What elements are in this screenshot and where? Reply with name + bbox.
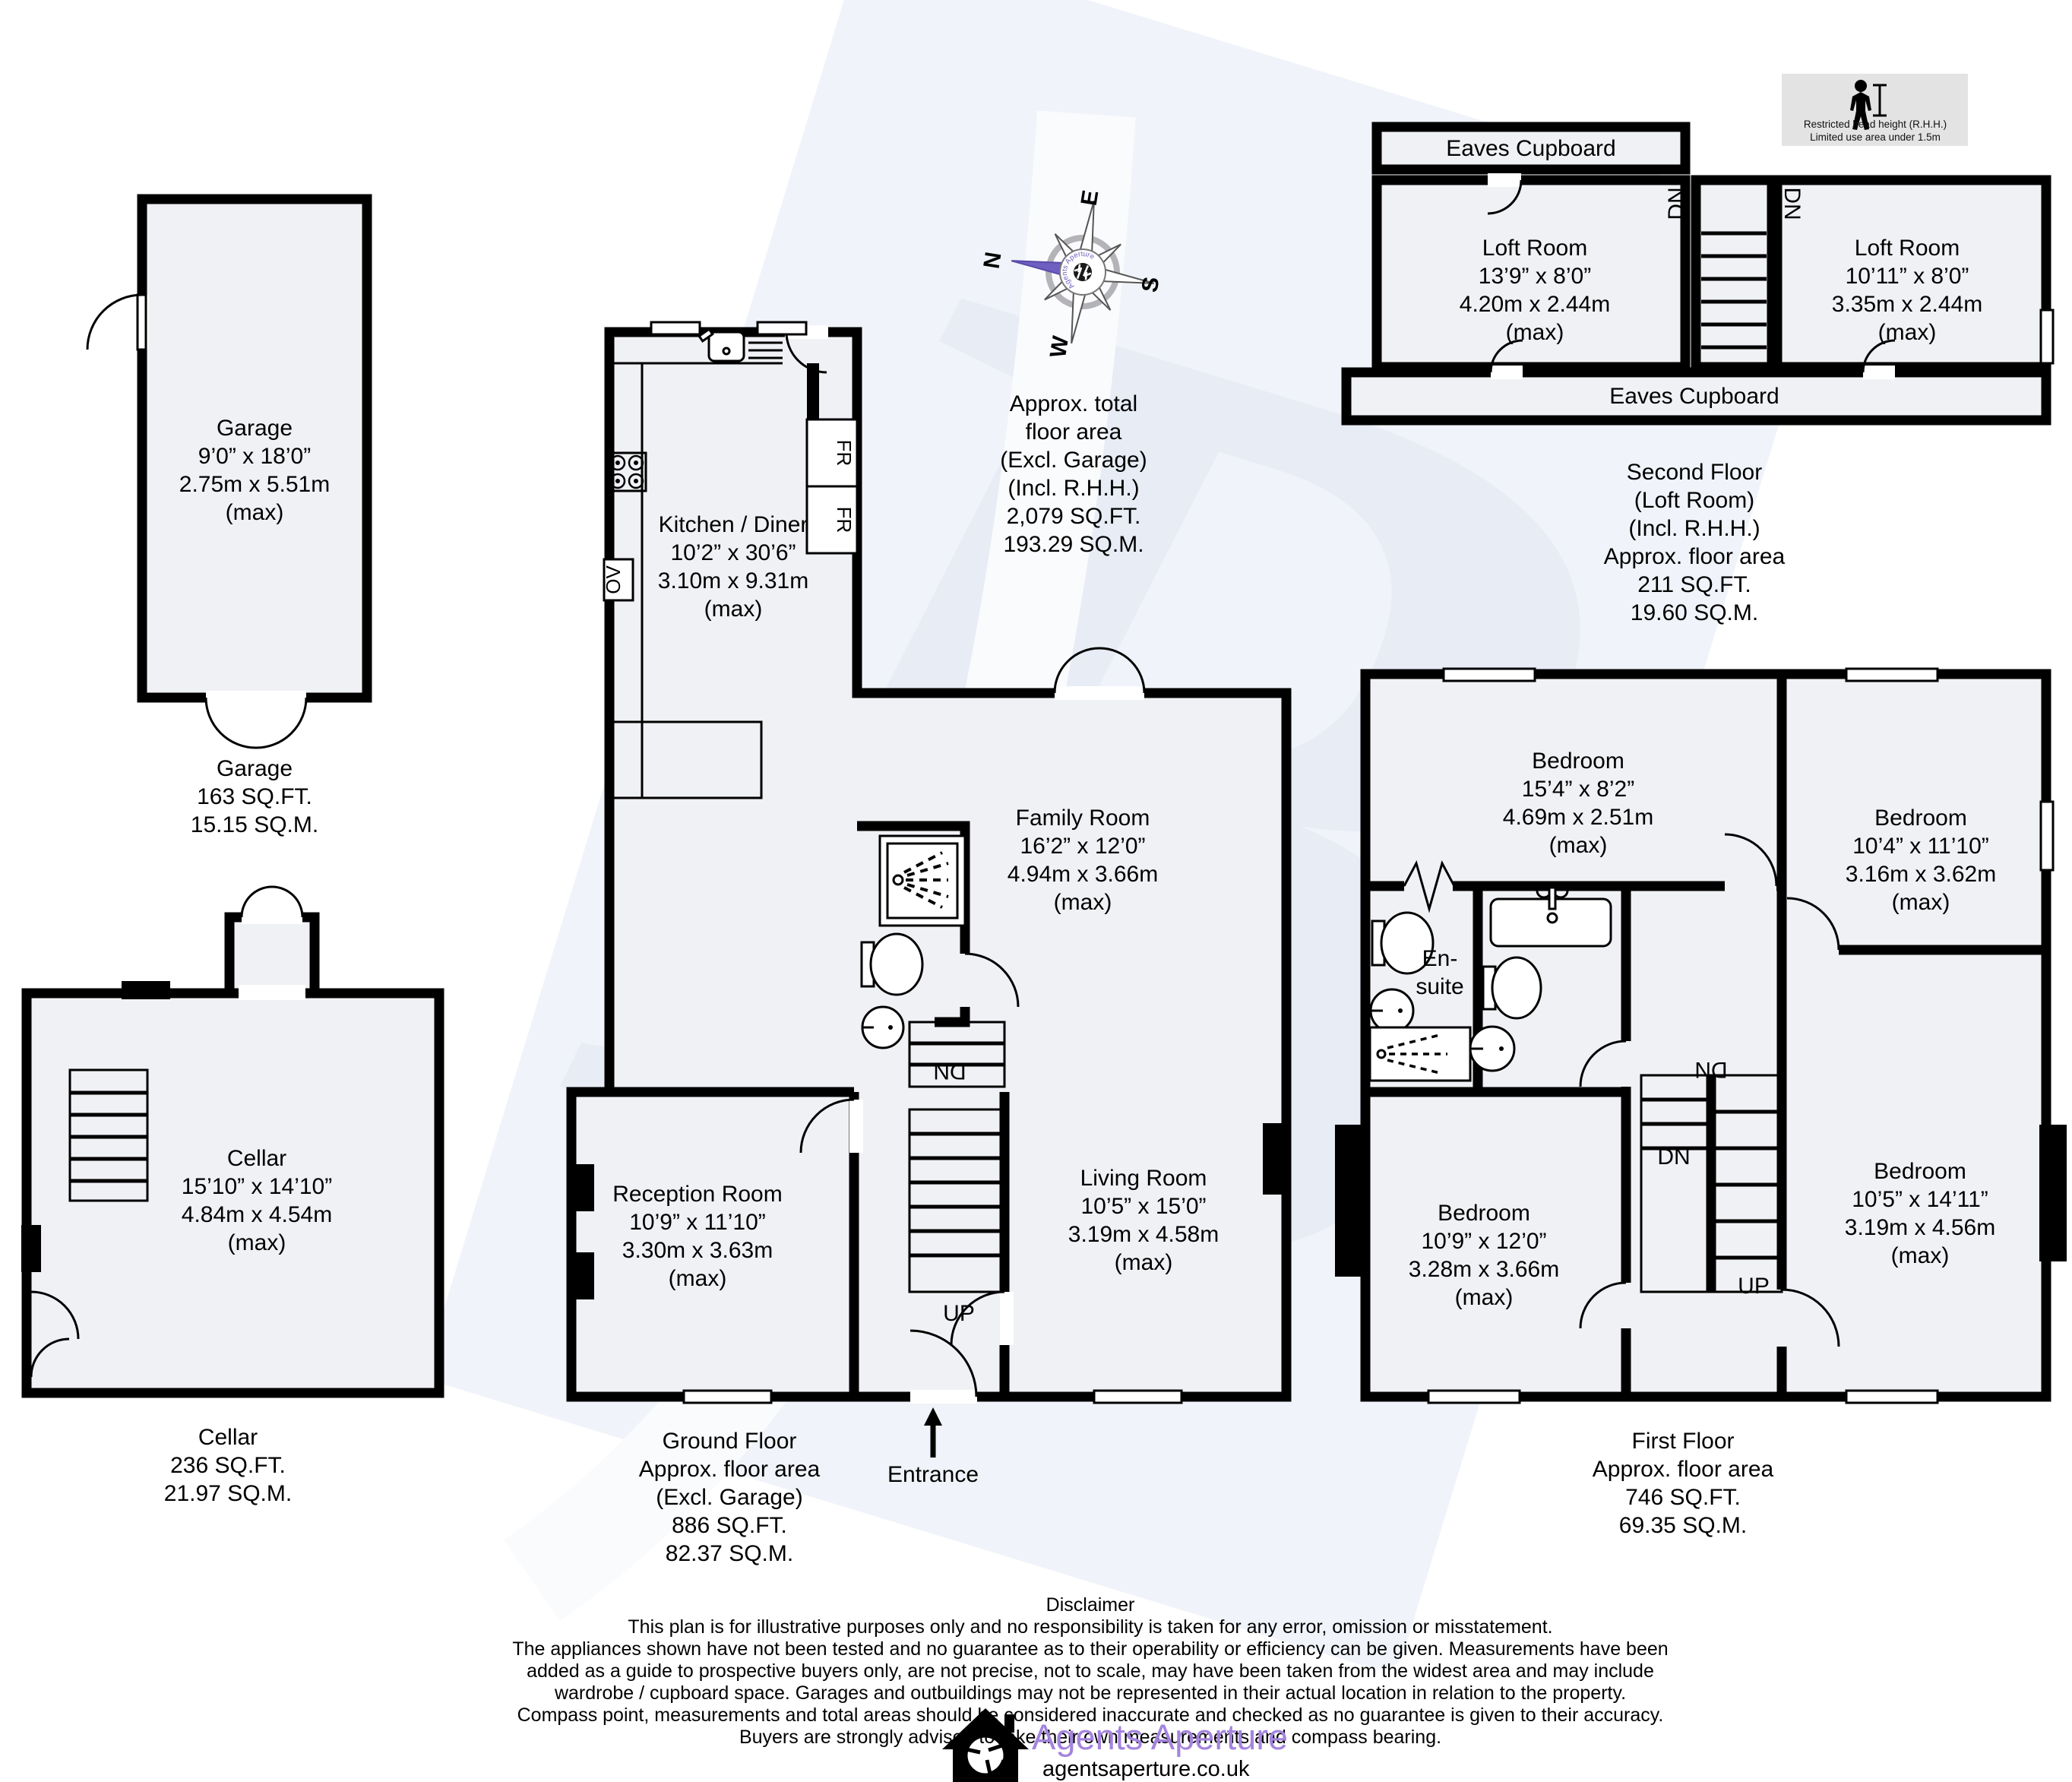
brand-name: Agents Aperture [1032,1716,1288,1758]
compass-e-label: E [1077,188,1104,207]
entrance-label: Entrance [819,1461,1047,1489]
ground-footer-label: Ground Floor Approx. floor area (Excl. G… [615,1427,843,1568]
ensuite-label: En- suite [1383,945,1497,1001]
disclaimer-title: Disclaimer [1046,1594,1135,1616]
ground-dn-label: DN [933,1059,966,1084]
total-area-label: Approx. total floor area (Excl. Garage) … [960,390,1188,559]
second-dn-right-label: DN [1779,187,1805,220]
kitchen-label: Kitchen / Diner 10’2” x 30’6” 3.10m x 9.… [619,511,847,623]
cellar-footer-label: Cellar 236 SQ.FT. 21.97 SQ.M. [114,1423,342,1508]
window [2041,310,2053,363]
floorplan-page: B [0,0,2072,1782]
living-room-label: Living Room 10’5” x 15’0” 3.19m x 4.58m … [1030,1164,1257,1277]
eaves-top-label: Eaves Cupboard [1417,135,1645,163]
ensuite-shower-icon [1370,1027,1470,1081]
ground-up-label: UP [943,1301,975,1326]
compass-n-label: N [979,250,1007,271]
compass-icon: Agents Aperture N E S W [979,188,1166,359]
toilet-icon [862,934,922,995]
rhh-line1: Restricted head height (R.H.H.) [1786,118,1965,131]
brand-url: agentsaperture.co.uk [1042,1757,1249,1782]
first-dn-lower-label: DN [1657,1144,1690,1170]
first-bed3-label: Bedroom 10’9” x 12’0” 3.28m x 3.66m (max… [1370,1199,1598,1312]
garage-footer-label: Garage 163 SQ.FT. 15.15 SQ.M. [141,755,369,839]
first-bed2-label: Bedroom 10’4” x 11’10” 3.16m x 3.62m (ma… [1807,804,2035,916]
first-up-label: UP [1738,1274,1770,1299]
compass-s-label: S [1137,275,1165,294]
sink-icon [862,1007,903,1048]
cellar-room-label: Cellar 15’10” x 14’10” 4.84m x 4.54m (ma… [143,1144,371,1257]
garage-room-label: Garage 9’0” x 18’0” 2.75m x 5.51m (max) [141,414,369,527]
reception-room-label: Reception Room 10’9” x 11’10” 3.30m x 3.… [584,1180,811,1293]
first-footer-label: First Floor Approx. floor area 746 SQ.FT… [1569,1427,1797,1540]
first-dn-upper-label: DN [1694,1057,1727,1082]
cellar-plan [21,887,439,1393]
compass-w-label: W [1045,334,1074,359]
bathroom-sink-icon [1470,1027,1514,1071]
rhh-line2: Limited use area under 1.5m [1786,131,1965,144]
loft-right-label: Loft Room 10’11” x 8’0” 3.35m x 2.44m (m… [1793,234,2021,347]
family-room-label: Family Room 16’2” x 12’0” 4.94m x 3.66m … [969,804,1197,916]
fridge-label-1: FR [833,440,856,467]
eaves-bottom-label: Eaves Cupboard [1580,382,1808,410]
entrance-arrow-icon [924,1407,942,1458]
shower-icon [880,836,965,926]
second-dn-left-label: DN [1664,187,1689,220]
first-bed1-label: Bedroom 15’4” x 8’2” 4.69m x 2.51m (max) [1464,747,1692,859]
loft-left-label: Loft Room 13’9” x 8’0” 4.20m x 2.44m (ma… [1421,234,1649,347]
first-bed4-label: Bedroom 10’5” x 14’11” 3.19m x 4.56m (ma… [1806,1157,2034,1270]
second-footer-label: Second Floor (Loft Room) (Incl. R.H.H.) … [1580,458,1808,627]
